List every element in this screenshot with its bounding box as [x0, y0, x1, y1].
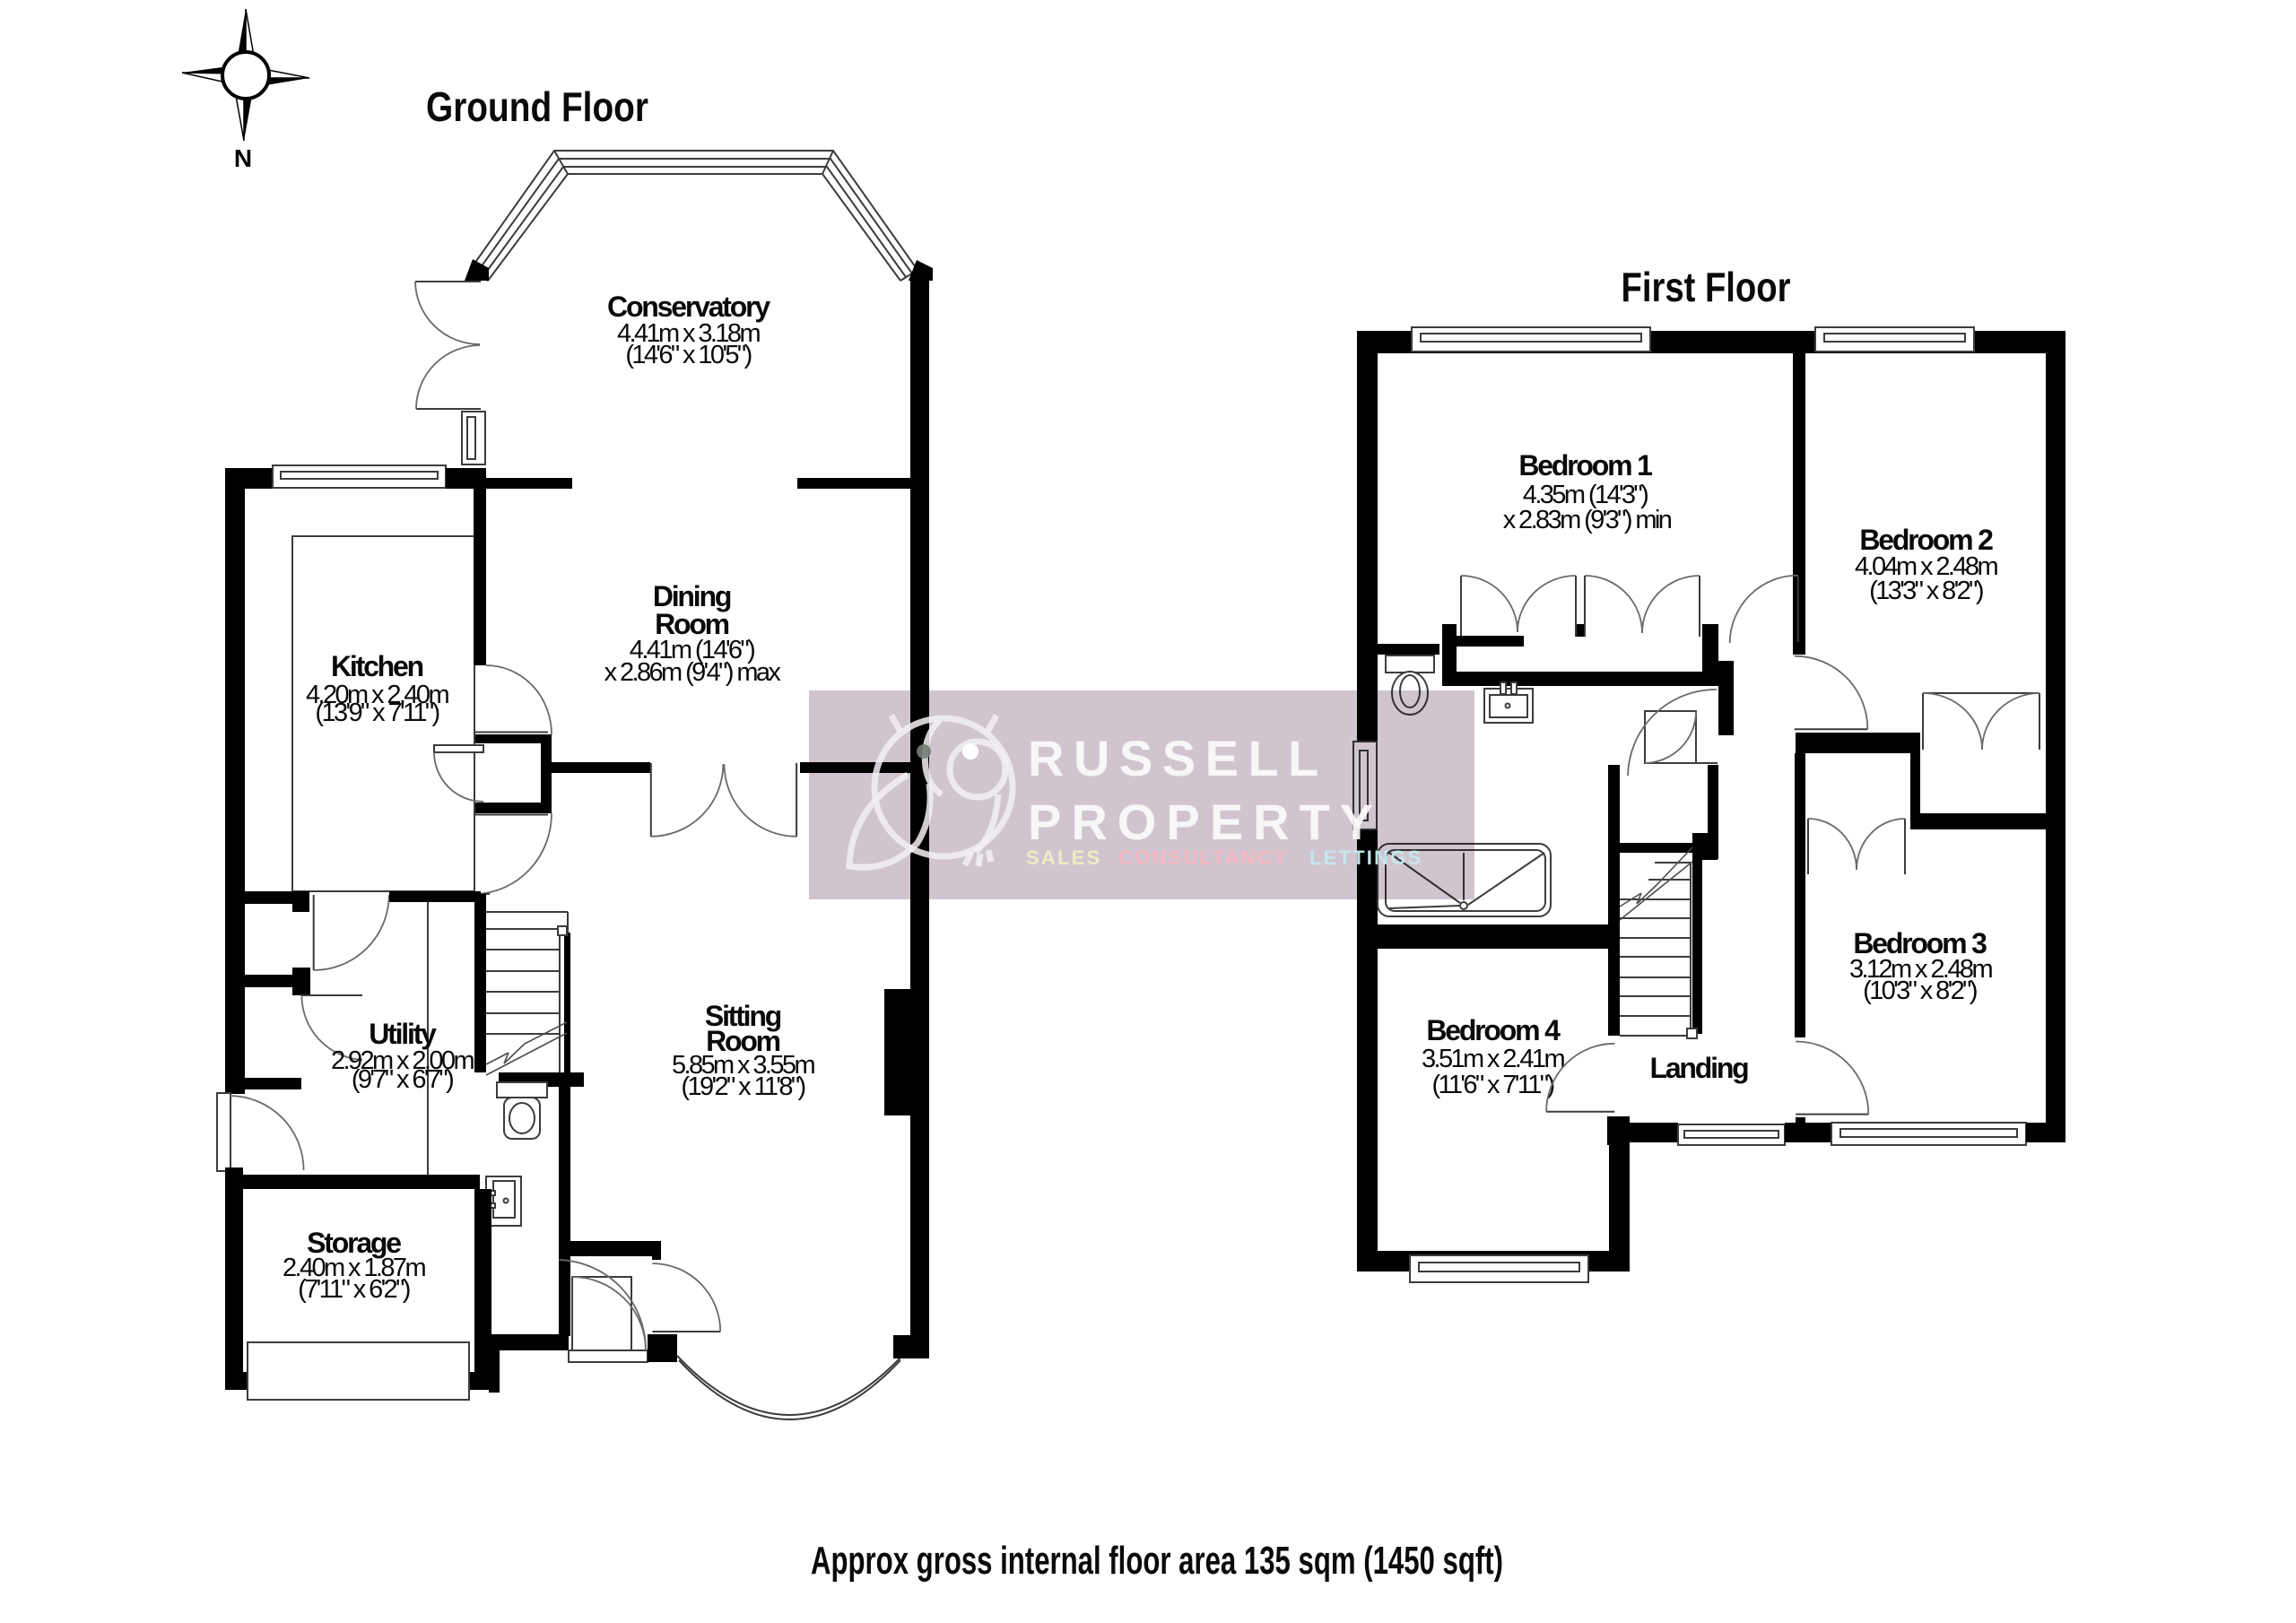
- svg-text:(14'6" x 10'5"): (14'6" x 10'5"): [625, 341, 751, 369]
- svg-text:Bedroom 4: Bedroom 4: [1426, 1014, 1561, 1046]
- svg-text:Bedroom 1: Bedroom 1: [1518, 449, 1652, 482]
- svg-text:(13'9" x 7'11"): (13'9" x 7'11"): [315, 699, 439, 727]
- svg-text:Approx gross internal floor ar: Approx gross internal floor area 135 sqm…: [811, 1539, 1503, 1583]
- svg-text:x 2.86m (9'4") max: x 2.86m (9'4") max: [604, 658, 782, 687]
- svg-text:(11'6" x 7'11"): (11'6" x 7'11"): [1431, 1071, 1553, 1099]
- svg-text:(13'3" x 8'2"): (13'3" x 8'2"): [1869, 577, 1983, 605]
- svg-text:SALES: SALES: [1026, 846, 1101, 869]
- svg-text:x 2.83m (9'3") min: x 2.83m (9'3") min: [1503, 506, 1672, 534]
- svg-text:Ground Floor: Ground Floor: [426, 83, 648, 130]
- svg-text:(19'2" x 11'8"): (19'2" x 11'8"): [681, 1072, 804, 1101]
- svg-text:(10'3" x 8'2"): (10'3" x 8'2"): [1863, 976, 1977, 1005]
- svg-text:3.51m x 2.41m: 3.51m x 2.41m: [1422, 1045, 1564, 1073]
- svg-text:First Floor: First Floor: [1622, 264, 1791, 310]
- svg-text:N: N: [234, 144, 252, 172]
- svg-text:Kitchen: Kitchen: [331, 650, 423, 682]
- svg-text:Conservatory: Conservatory: [607, 291, 770, 323]
- svg-text:RUSSELL: RUSSELL: [1028, 730, 1328, 786]
- svg-text:Utility: Utility: [369, 1018, 437, 1050]
- svg-text:PROPERTY: PROPERTY: [1028, 794, 1383, 850]
- svg-text:Landing: Landing: [1649, 1052, 1748, 1084]
- svg-text:(9'7" x 6'7"): (9'7" x 6'7"): [352, 1065, 453, 1094]
- svg-text:CONSULTANCY: CONSULTANCY: [1118, 846, 1289, 869]
- svg-text:LETTINGS: LETTINGS: [1309, 846, 1422, 869]
- svg-text:Bedroom 2: Bedroom 2: [1859, 524, 1993, 556]
- svg-text:(7'11" x 6'2"): (7'11" x 6'2"): [298, 1275, 410, 1304]
